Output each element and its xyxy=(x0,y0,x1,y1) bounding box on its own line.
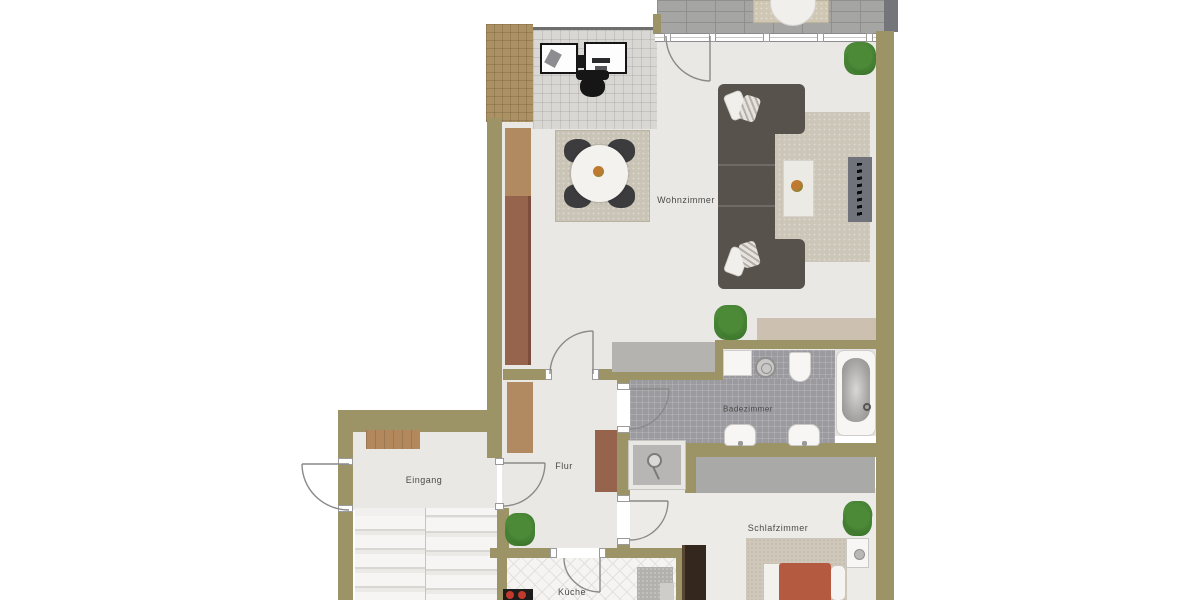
nightstand-knob-icon xyxy=(854,549,865,560)
stair-flight-right xyxy=(426,508,497,600)
plant-icon xyxy=(844,42,876,75)
stair-divider xyxy=(425,508,426,600)
staircase xyxy=(355,508,497,600)
wall-living-left xyxy=(487,118,502,380)
burner-icon xyxy=(518,591,526,599)
window-jamb-tick xyxy=(763,33,770,42)
door-jamb xyxy=(545,369,552,380)
desk-panel-left xyxy=(540,43,578,74)
wall-entrance-top xyxy=(338,410,500,432)
wardrobe xyxy=(682,545,706,600)
door-jamb xyxy=(599,548,606,558)
sink-faucet-icon xyxy=(802,441,807,446)
tv-icon xyxy=(857,163,862,216)
office-chair-seat xyxy=(580,76,605,97)
drain-ring xyxy=(761,363,772,374)
bed xyxy=(746,538,847,600)
wall-bath-bedroom xyxy=(685,443,695,493)
stair-flight-left xyxy=(355,516,426,600)
nightstand xyxy=(846,538,869,568)
room-label-kueche: Küche xyxy=(558,587,586,597)
bathtub-faucet-icon xyxy=(863,403,871,411)
tv-lowboard xyxy=(848,157,872,222)
window-jamb-tick xyxy=(866,33,873,42)
window-jamb-tick xyxy=(709,33,716,42)
bathtub-basin xyxy=(842,358,870,422)
desk-connector xyxy=(577,55,585,68)
bed-blanket-red xyxy=(779,563,831,600)
wall-balcony-corner xyxy=(653,14,661,34)
door-jamb xyxy=(495,458,504,465)
wall-living-bath xyxy=(715,340,876,349)
room-label-wohnzimmer: Wohnzimmer xyxy=(657,195,715,205)
plant-icon xyxy=(505,513,535,546)
room-label-flur: Flur xyxy=(555,461,573,471)
shower xyxy=(628,440,686,490)
table-centerpiece xyxy=(593,166,604,177)
room-label-badezimmer: Badezimmer xyxy=(723,405,773,414)
door-jamb xyxy=(338,458,353,465)
door-jamb xyxy=(338,505,353,512)
door-jamb xyxy=(617,426,630,433)
washing-machine xyxy=(723,350,752,376)
door-jamb xyxy=(495,503,504,510)
wall-kitchen-top-right xyxy=(603,548,683,558)
burner-icon xyxy=(506,591,514,599)
hall-cabinet-tan xyxy=(507,382,533,453)
hall-cabinet-brown xyxy=(595,430,617,492)
bedroom-closet xyxy=(694,457,875,493)
door-jamb xyxy=(592,369,599,380)
kitchen-counter-light xyxy=(660,583,674,600)
window-jamb-tick xyxy=(817,33,824,42)
plant-icon xyxy=(714,305,747,340)
shower-head-icon xyxy=(647,453,662,468)
plant-icon xyxy=(843,501,872,536)
bed-pillow xyxy=(831,566,845,600)
wall-hall-left-upper xyxy=(487,380,502,458)
roof-terrace-strip xyxy=(486,24,533,122)
monitor-icon xyxy=(592,58,610,63)
bathroom-sink xyxy=(724,424,756,446)
bathtub xyxy=(836,350,876,436)
wall-right-outer xyxy=(876,31,894,600)
room-label-eingang: Eingang xyxy=(406,475,443,485)
sideboard-beige xyxy=(757,318,876,340)
laptop-icon xyxy=(544,49,562,68)
sideboard-light xyxy=(505,128,531,196)
door-jamb xyxy=(617,383,630,390)
balcony-side-wall xyxy=(884,0,898,32)
floor-plan: Wohnzimmer Badezimmer Flur Eingang Schla… xyxy=(0,0,1200,600)
toilet xyxy=(789,352,811,382)
bed-sheet xyxy=(764,564,780,600)
door-jamb xyxy=(617,538,630,545)
door-jamb xyxy=(617,495,630,502)
shelf-dark xyxy=(505,196,531,365)
door-jamb xyxy=(550,548,557,558)
window-jamb-tick xyxy=(664,33,671,42)
wall-bath-bottom xyxy=(685,443,876,457)
room-label-schlafzimmer: Schlafzimmer xyxy=(748,523,809,533)
doormat xyxy=(366,430,420,449)
stove xyxy=(503,589,533,600)
sink-faucet-icon xyxy=(738,441,743,446)
coffee-table-plant-icon xyxy=(791,180,803,192)
lowboard-gray xyxy=(612,342,715,372)
bathroom-sink xyxy=(788,424,820,446)
wall-kitchen-top-left xyxy=(490,548,552,558)
wall-living-hall-left xyxy=(503,369,548,380)
floor-drain-icon xyxy=(755,357,776,378)
